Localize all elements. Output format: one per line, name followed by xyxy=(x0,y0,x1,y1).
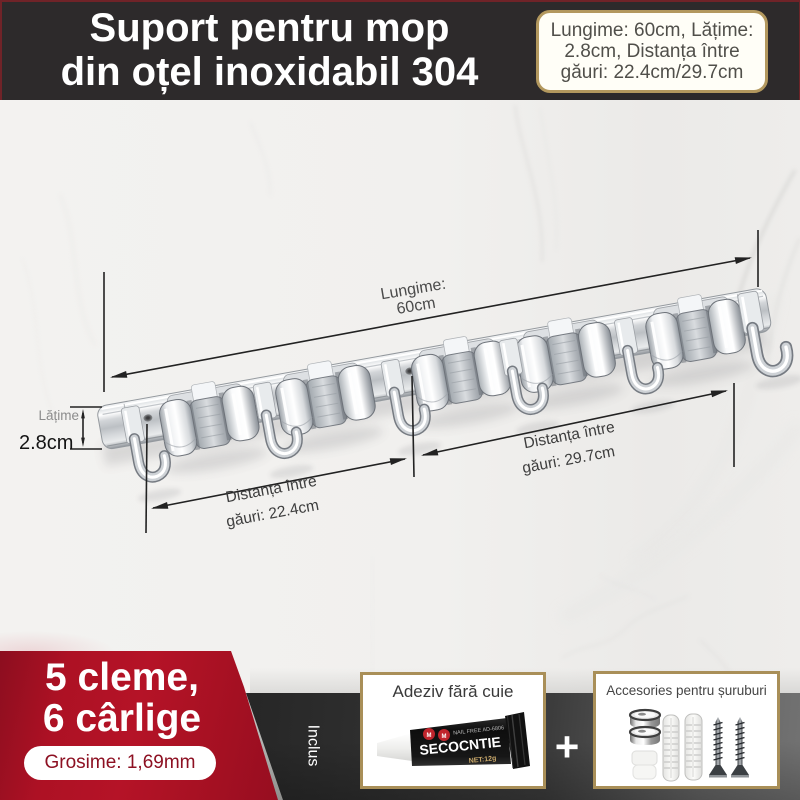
svg-text:Lățime: Lățime xyxy=(38,408,79,423)
svg-text:2.8cm: 2.8cm xyxy=(19,432,73,454)
svg-text:M: M xyxy=(427,733,432,739)
